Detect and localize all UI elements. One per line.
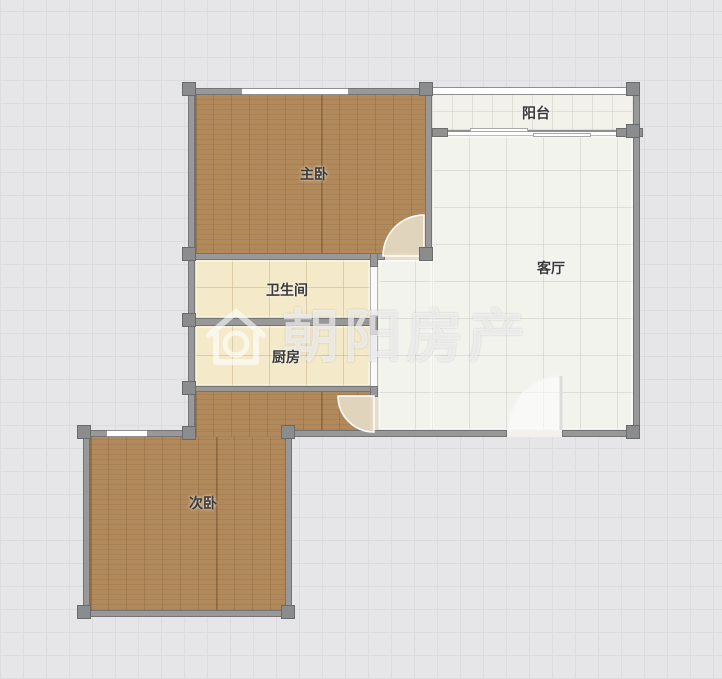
living-room-label: 客厅 [537,258,565,278]
second-bedroom-door-arc [336,392,378,434]
wall-bath-kitchen-divider [188,318,378,326]
corner-block [182,381,196,395]
bathroom-door-opening [370,267,378,315]
living-room-hall-floor [378,260,432,430]
wall-bath-right-upper [370,253,378,267]
corner-block [281,605,295,619]
corner-block [182,247,196,261]
entry-door-arc [505,373,565,433]
second-bedroom-connector-floor [195,430,285,437]
corner-block [626,425,640,439]
wall-bed2-right [285,430,292,610]
wall-right [633,88,640,437]
corner-block [182,82,196,96]
corner-block [77,425,91,439]
wall-master-bottom [188,253,385,260]
wall-bed2-left [83,430,90,617]
sliding-door-panel-1 [470,128,528,132]
balcony-label: 阳台 [522,103,550,123]
corner-block [182,426,196,440]
sliding-door-left-cap [432,128,448,137]
corner-block [626,124,640,138]
corner-block [419,82,433,96]
wall-bed2-bottom [83,610,293,617]
kitchen-door-opening [370,335,378,386]
balcony-window-band [429,87,630,95]
kitchen-label: 厨房 [272,347,300,367]
sliding-door-panel-2 [533,133,591,137]
corner-block [182,313,196,327]
corner-block [77,605,91,619]
wall-bath-right-mid [370,315,378,335]
wall-living-bottom-left [285,430,507,437]
corner-block [626,82,640,96]
second-bedroom-floor [90,437,285,610]
master-bedroom-label: 主卧 [300,164,328,184]
bathroom-label: 卫生间 [266,280,308,300]
master-bedroom-window [242,88,348,95]
corner-block [281,425,295,439]
corner-block [419,247,433,261]
second-bedroom-window [107,430,147,437]
second-bedroom-label: 次卧 [189,493,217,513]
floor-plan: 朝阳房产 主卧 阳台 客厅 卫生间 厨房 次卧 [0,0,722,679]
